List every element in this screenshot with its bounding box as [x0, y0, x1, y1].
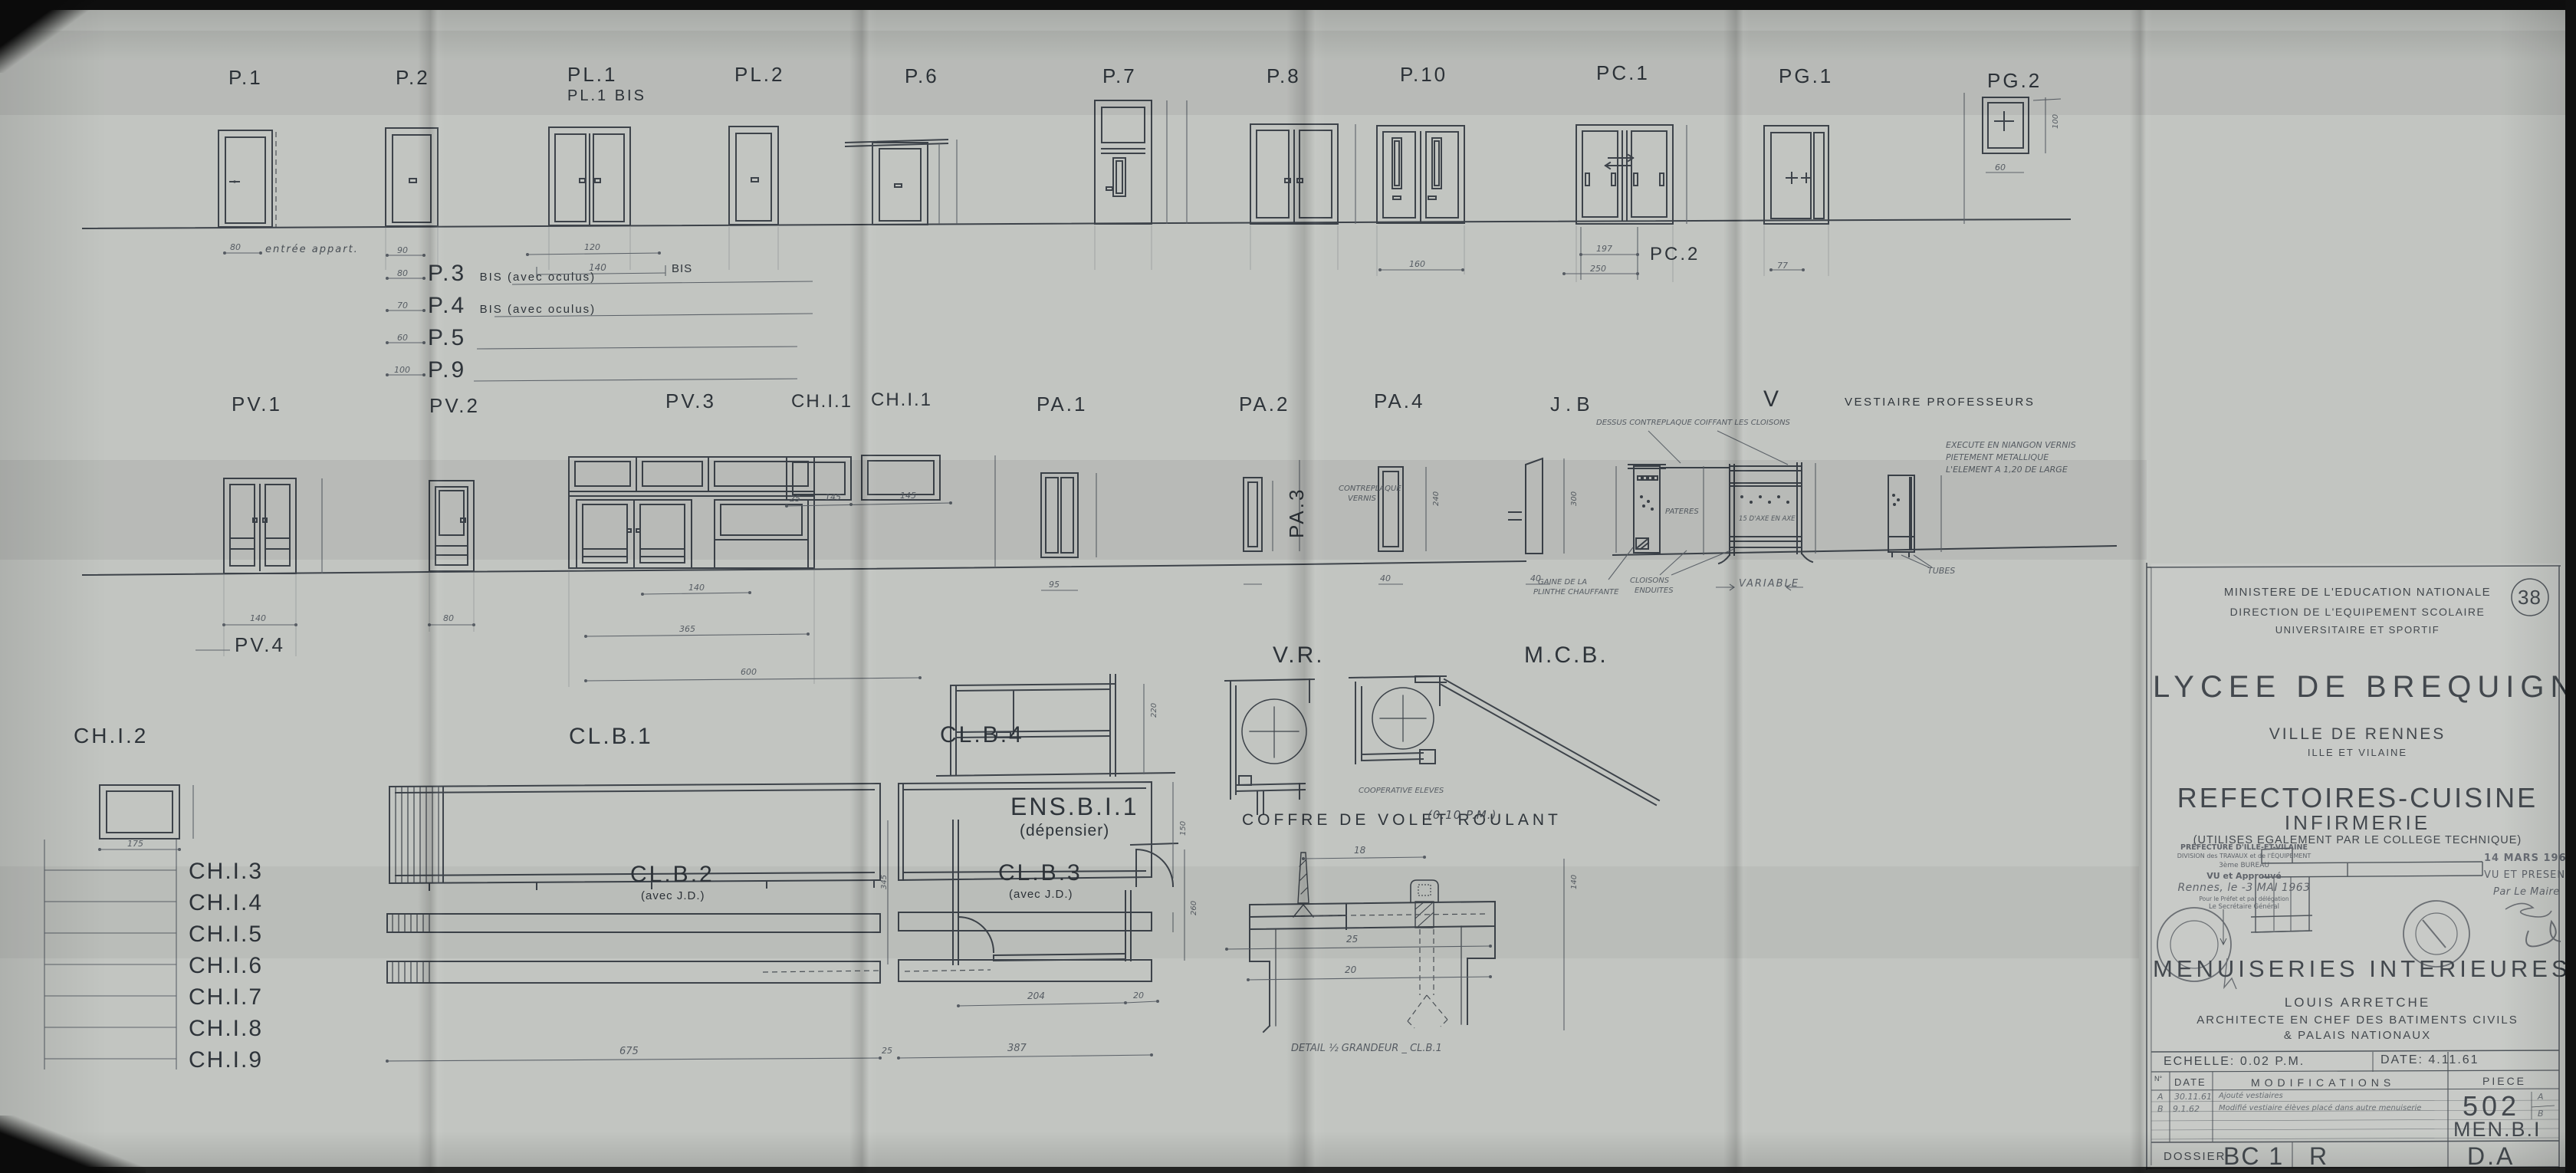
dim-90: 90: [397, 245, 408, 255]
dim-clb-675: 675: [619, 1046, 639, 1057]
figure-label-ens-sub: (dépensier): [1020, 822, 1109, 840]
fold-line-2: [849, 0, 877, 1173]
dim-pa1-95: 95: [1049, 580, 1060, 590]
annotation-gaine-1: GAINE DE LA: [1538, 578, 1587, 586]
stamp-prefecture-line3: 3ème BUREAU: [2156, 862, 2332, 869]
annotation-tubes: TUBES: [1927, 566, 1955, 576]
dim-chi1-145b: 145: [900, 491, 916, 501]
dim-pg2-100: 100: [2052, 114, 2060, 129]
annotation-contreplaque-2: VERNIS: [1348, 495, 1376, 503]
figure-label-chi2: CH.I.2: [74, 724, 148, 748]
title-department: ILLE ET VILAINE: [2153, 747, 2562, 758]
blueprint-sheet: P.1 P.2 PL.1 PL.1 BIS PL.2 P.6 P.7 P.8 P…: [0, 0, 2576, 1173]
dim-250: 250: [1590, 264, 1606, 274]
figure-label-pc2: PC.2: [1650, 244, 1700, 265]
dim-coffre-20: 20: [1345, 964, 1356, 975]
dim-pv3-140: 140: [688, 583, 705, 593]
list-label-chi5: CH.I.5: [189, 922, 263, 948]
title-city: VILLE DE RENNES: [2153, 725, 2562, 744]
mod-row-b-id: B: [2157, 1104, 2164, 1114]
figure-label-ens: ENS.B.I.1: [1010, 793, 1139, 821]
figure-label-clb3-note: (avec J.D.): [1009, 888, 1073, 901]
mod-row-a-text: Ajouté vestiaires: [2219, 1092, 2283, 1100]
figure-label-vestiaire-professeurs: VESTIAIRE PROFESSEURS: [1845, 396, 2035, 409]
dim-pv1-140: 140: [250, 613, 266, 623]
dim-80: 80: [397, 268, 408, 278]
figure-label-clb1: CL.B.1: [569, 724, 653, 750]
dim-jb-40: 40: [1530, 573, 1541, 583]
dim-pg2-60: 60: [1995, 163, 2006, 172]
figure-label-clb2: CL.B.2: [630, 862, 715, 888]
figure-label-clb3: CL.B.3: [998, 860, 1083, 886]
figure-label-pv4: PV.4: [235, 633, 285, 657]
figure-label-p10: P.10: [1400, 63, 1447, 87]
dim-pa4-40: 40: [1380, 573, 1391, 583]
mod-row-a-date: 30.11.61: [2174, 1092, 2212, 1102]
list-label-chi9: CH.I.9: [189, 1047, 263, 1073]
dim-ens-260: 260: [1190, 901, 1198, 915]
mod-row-b-date: 9.1.62: [2173, 1104, 2200, 1114]
fold-line-5: [2130, 0, 2153, 1173]
figure-label-p6: P.6: [905, 64, 939, 88]
stamp-prefecture-line1: PRÉFECTURE D'ILLE-ET-VILAINE: [2156, 843, 2332, 852]
stamp-prefecture-line5: Rennes, le -3 MAI 1963: [2156, 882, 2332, 894]
dossier-value: BC 1: [2223, 1142, 2284, 1171]
figure-label-pa4: PA.4: [1374, 389, 1424, 413]
figure-label-pc1: PC.1: [1596, 61, 1650, 85]
title-ministry-2: DIRECTION DE L'EQUIPEMENT SCOLAIRE: [2153, 606, 2562, 618]
dim-197: 197: [1596, 244, 1612, 254]
title-subject-2: INFIRMERIE: [2153, 811, 2562, 835]
dim-coffre-25: 25: [1346, 934, 1358, 945]
figure-label-p7: P.7: [1102, 64, 1137, 88]
dim-clb-25: 25: [882, 1046, 892, 1056]
stamp-prefecture-line2: DIVISION des TRAVAUX et de l'ÉQUIPEMENT: [2156, 853, 2332, 859]
stamp-prefecture-line6: Pour le Préfet et par délégation: [2156, 895, 2332, 902]
dim-ens-345: 345: [880, 875, 889, 889]
dim-ens-20: 20: [1133, 991, 1144, 1001]
list-label-chi8: CH.I.8: [189, 1016, 263, 1042]
dim-100: 100: [394, 365, 410, 375]
dim-120: 120: [584, 242, 600, 252]
dim-chi1-145a: 145: [825, 492, 841, 502]
dim-pv3-365: 365: [679, 624, 695, 634]
figure-label-pv1: PV.1: [232, 393, 282, 416]
fold-line-3: [1286, 0, 1326, 1173]
tag-bis: BIS: [672, 262, 692, 275]
figure-label-pa2: PA.2: [1239, 393, 1290, 416]
titleblock-date: DATE: 4.11.61: [2380, 1053, 2479, 1067]
figure-label-coffre-scale: (0.10 P.M.): [1428, 808, 1497, 822]
dossier-code: D.A: [2467, 1142, 2515, 1171]
figure-label-jb: J.B: [1550, 393, 1595, 416]
dim-140-bis: 140: [589, 262, 606, 273]
stamp-mayor-vu: VU ET PRESENTE: [2484, 869, 2576, 881]
annotation-cooperative-eleves: COOPERATIVE ELEVES: [1359, 787, 1444, 795]
dim-70: 70: [397, 301, 408, 310]
annotation-execute-2: PIETEMENT METALLIQUE: [1946, 452, 2049, 462]
note-entree-appart: entrée appart.: [265, 244, 359, 255]
dim-ens-204: 204: [1027, 991, 1045, 1001]
title-subject-1: REFECTOIRES-CUISINE: [2153, 782, 2562, 814]
mods-col-no: N°: [2154, 1075, 2162, 1083]
figure-label-chi1-a: CH.I.1: [791, 391, 853, 412]
fold-line-1: [418, 0, 445, 1173]
figure-label-pv3: PV.3: [665, 389, 716, 413]
figure-label-v: V: [1763, 386, 1781, 412]
dim-jb-300: 300: [1570, 491, 1579, 506]
list-label-chi3: CH.I.3: [189, 859, 263, 885]
piece-code: MEN.B.I: [2453, 1118, 2541, 1142]
sheet-number: 38: [2518, 586, 2541, 609]
dim-coffre-18: 18: [1354, 845, 1365, 856]
annotation-cloisons-2: ENDUITES: [1635, 586, 1674, 595]
figure-label-clb2-note: (avec J.D.): [641, 889, 705, 902]
mods-col-modifications: MODIFICATIONS: [2251, 1076, 2395, 1089]
title-architect-title-2: & PALAIS NATIONAUX: [2153, 1029, 2562, 1042]
figure-label-chi1-b: CH.I.1: [871, 389, 932, 411]
annotation-cloisons-1: CLOISONS: [1630, 577, 1669, 585]
title-project: LYCEE DE BREQUIGNY: [2153, 670, 2562, 705]
dim-77: 77: [1777, 261, 1788, 271]
figure-label-pl2: PL.2: [734, 63, 785, 87]
dossier-rev: R: [2309, 1142, 2329, 1171]
figure-label-mcb: M.C.B.: [1524, 642, 1608, 669]
figure-label-p1: P.1: [228, 66, 263, 90]
dim-chi2-175: 175: [127, 839, 143, 849]
mods-col-piece: PIECE: [2482, 1075, 2526, 1087]
stamp-mayor-date: 14 MARS 1963: [2484, 853, 2574, 864]
title-ministry-3: UNIVERSITAIRE ET SPORTIF: [2153, 624, 2562, 636]
dim-pa4-240: 240: [1432, 491, 1441, 506]
fold-line-4: [1723, 0, 1751, 1173]
annotation-execute-1: EXECUTE EN NIANGON VERNIS: [1946, 440, 2076, 450]
dim-chi1-25: 25: [790, 494, 800, 504]
dim-coffre-140: 140: [1570, 875, 1579, 889]
dim-160: 160: [1409, 259, 1425, 269]
titleblock-scale: ECHELLE: 0.02 P.M.: [2164, 1055, 2305, 1069]
list-label-chi4: CH.I.4: [189, 890, 263, 916]
stamp-prefecture-line4: VU et Approuvé: [2156, 871, 2332, 881]
figure-label-pg2: PG.2: [1987, 69, 2042, 93]
annotation-pateres: PATERES: [1665, 508, 1699, 516]
figure-label-pl1bis: PL.1 BIS: [567, 87, 646, 105]
title-ministry-1: MINISTERE DE L'EDUCATION NATIONALE: [2153, 586, 2562, 599]
variant-p4-suffix: BIS (avec oculus): [480, 303, 596, 316]
dim-clb-150: 150: [1179, 821, 1188, 836]
annotation-execute-3: L'ELEMENT A 1,20 DE LARGE: [1946, 465, 2068, 475]
dim-pv3-600: 600: [741, 667, 757, 677]
dim-clb-387: 387: [1007, 1043, 1027, 1054]
mod-row-b-text: Modifié vestiaire élèves placé dans autr…: [2219, 1104, 2421, 1112]
piece-rev-a: A: [2538, 1092, 2544, 1102]
dim-entree-80: 80: [230, 242, 241, 252]
dim-60: 60: [397, 333, 408, 343]
mods-col-date: DATE: [2174, 1076, 2206, 1088]
annotation-gaine-2: PLINTHE CHAUFFANTE: [1533, 588, 1618, 596]
title-drawing-title: MENUISERIES INTERIEURES BOIS: [2153, 955, 2562, 983]
variant-p3: P.3 BIS (avec oculus): [428, 261, 596, 287]
annotation-contreplaque-1: CONTREPLAQUE: [1339, 485, 1401, 493]
dim-ens-220: 220: [1150, 703, 1158, 718]
figure-label-clb4: CL.B.4: [940, 722, 1024, 748]
dossier-label: DOSSIER: [2164, 1150, 2226, 1163]
stamp-prefecture-line7: Le Secrétaire Général: [2156, 903, 2332, 911]
mod-row-a-id: A: [2157, 1092, 2164, 1102]
stamp-mayor-maire: Par Le Maire: [2493, 886, 2560, 898]
figure-label-pa1: PA.1: [1037, 393, 1087, 416]
variant-p3-suffix: BIS (avec oculus): [480, 271, 596, 284]
list-label-chi7: CH.I.7: [189, 984, 263, 1010]
title-architect-title-1: ARCHITECTE EN CHEF DES BATIMENTS CIVILS: [2153, 1014, 2562, 1027]
figure-label-pg1: PG.1: [1779, 64, 1833, 88]
annotation-dessus-contreplaque: DESSUS CONTREPLAQUE COIFFANT LES CLOISON…: [1596, 419, 1790, 427]
variant-p4: P.4 BIS (avec oculus): [428, 293, 596, 319]
title-architect: LOUIS ARRETCHE: [2153, 995, 2562, 1010]
figure-label-pl1: PL.1: [567, 63, 618, 87]
list-label-chi6: CH.I.6: [189, 953, 263, 979]
